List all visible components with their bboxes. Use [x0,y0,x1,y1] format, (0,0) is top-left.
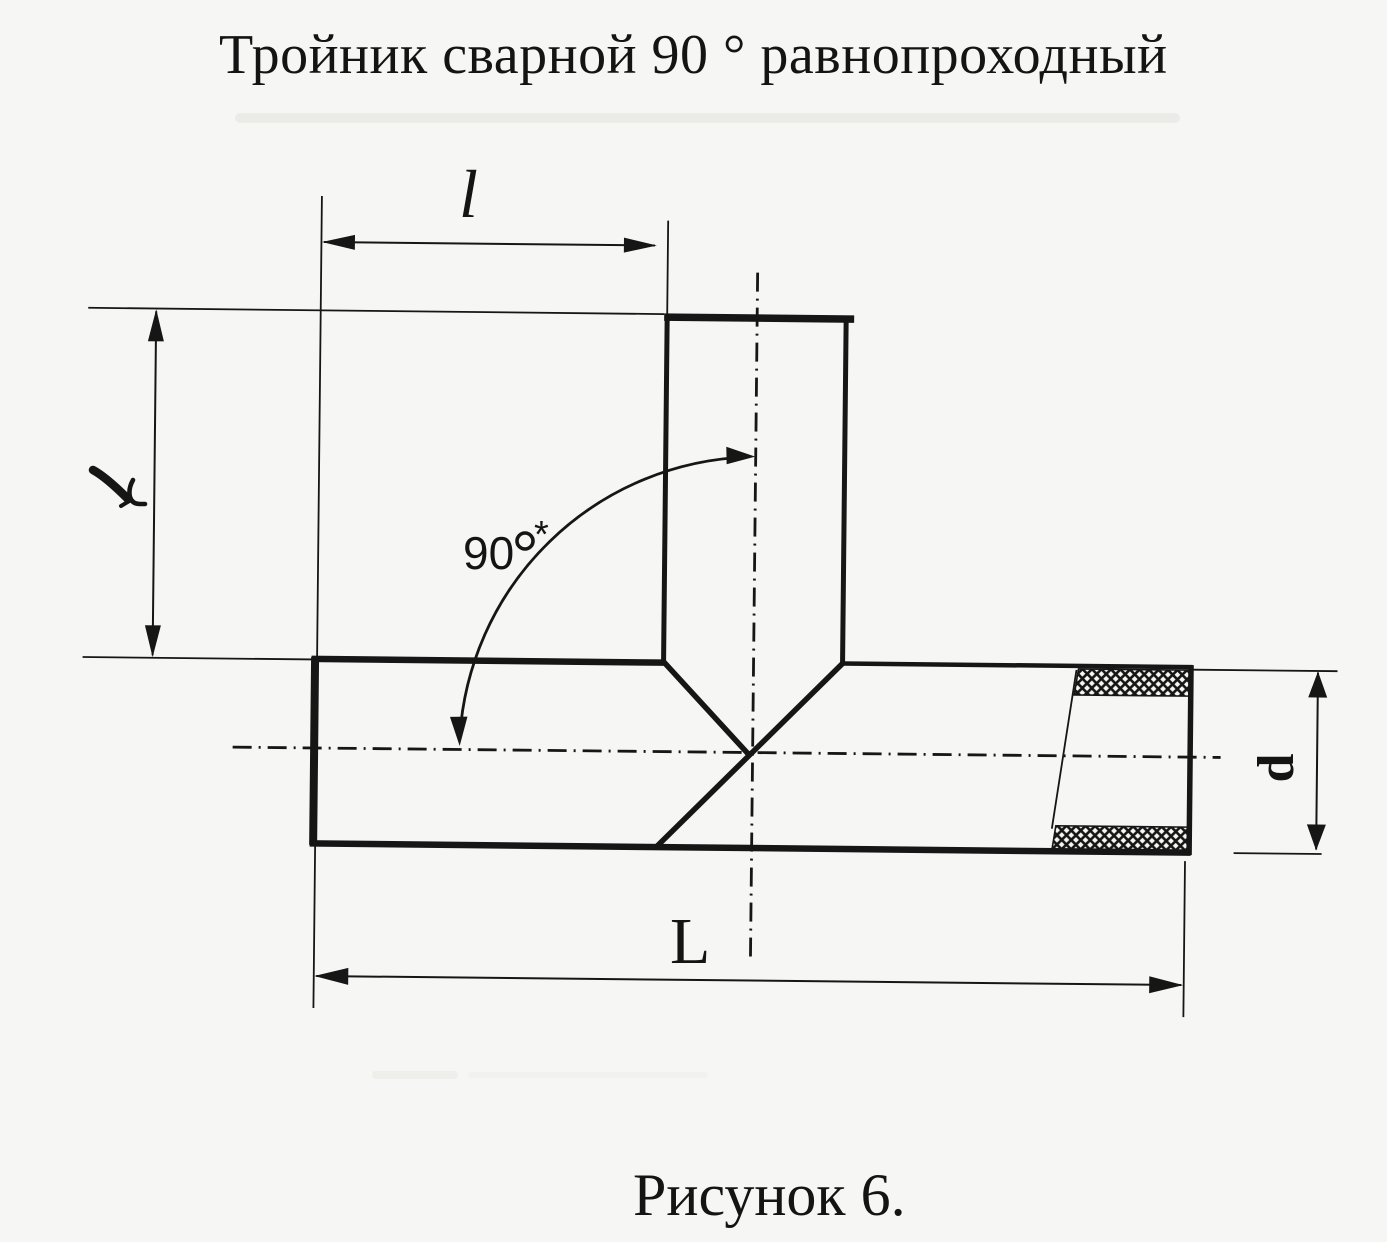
svg-text:d: d [1248,753,1305,782]
svg-text:L: L [670,905,710,978]
svg-text:Рисунок 6.: Рисунок 6. [633,1162,906,1228]
svg-text:90: 90 [463,527,514,579]
svg-text:Тройник сварной 90 ° равнопрох: Тройник сварной 90 ° равнопроходный [219,24,1168,86]
svg-text:*: * [534,514,549,556]
svg-text:l: l [459,156,478,232]
